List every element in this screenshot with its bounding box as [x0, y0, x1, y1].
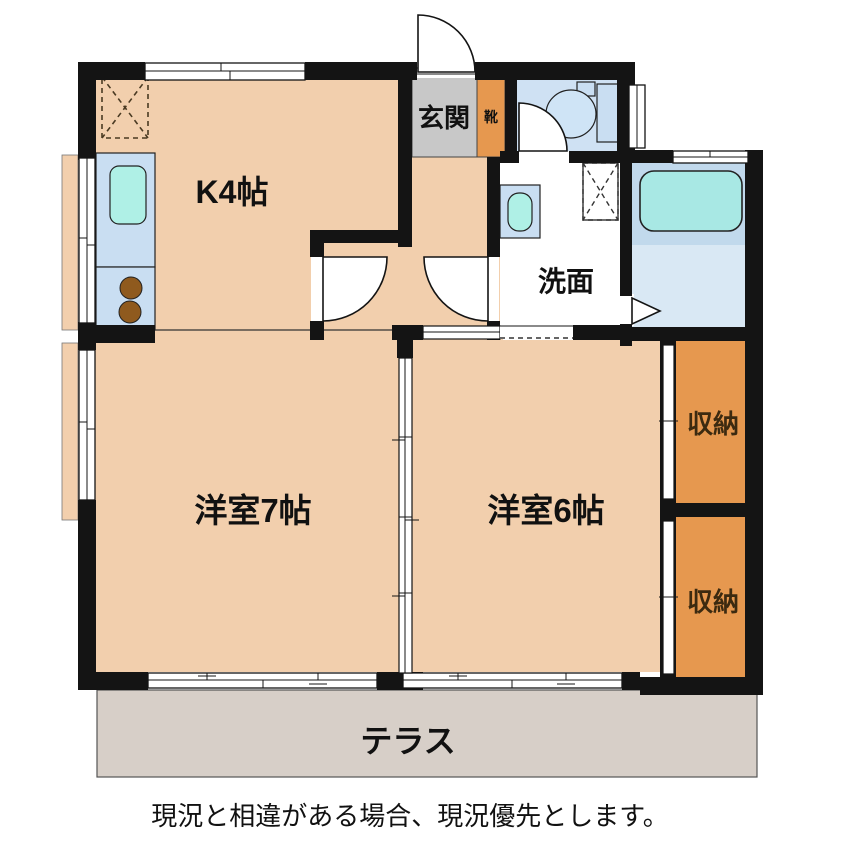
doorway-hall-washroom [488, 257, 499, 321]
wall [487, 157, 500, 257]
wall [392, 325, 423, 340]
wall [310, 321, 324, 340]
entrance-label: 玄関 [418, 103, 470, 133]
kitchen-label: K4帖 [196, 174, 269, 210]
wall [78, 62, 96, 160]
wall [622, 672, 640, 690]
washbasin-icon [500, 185, 540, 238]
left-ledge-upper [62, 155, 78, 330]
threshold-hall-room6 [423, 326, 500, 339]
terrace-label: テラス [360, 723, 455, 759]
floorplan-page: K4帖 玄関 靴 洗面 洋室7帖 洋室6帖 収納 収納 テラス 現況と相違がある… [0, 0, 846, 846]
storage-lower-label: 収納 [687, 587, 739, 617]
wall [78, 672, 148, 690]
shoe-cabinet-label: 靴 [484, 109, 498, 125]
disclaimer-caption: 現況と相違がある場合、現況優先とします。 [151, 801, 668, 831]
wall [398, 62, 412, 247]
window-bottom-room6 [403, 673, 622, 688]
wall [310, 243, 324, 257]
bathtub-icon [640, 171, 742, 231]
wall [397, 340, 413, 358]
doorway-toilet [519, 151, 569, 163]
western-room6-label: 洋室6帖 [487, 492, 604, 529]
wall [505, 62, 517, 159]
doorway-kitchen-hall [311, 257, 323, 321]
wall [78, 325, 155, 343]
stove-burner-icon [120, 277, 142, 299]
stove-burner-icon [119, 301, 141, 323]
kitchen-sink-icon [110, 166, 146, 224]
open-bar-washroom-room6 [500, 326, 573, 339]
floorplan-drawing: K4帖 玄関 靴 洗面 洋室7帖 洋室6帖 収納 収納 テラス 現況と相違がある… [0, 0, 846, 846]
washing-machine-space-icon [583, 163, 618, 220]
western-room7-label: 洋室7帖 [194, 492, 311, 529]
window-top-kitchen [145, 63, 305, 80]
wall [640, 677, 763, 695]
wall [310, 230, 412, 243]
wall [620, 327, 763, 341]
wall [620, 150, 632, 296]
bathroom-floor [632, 245, 750, 330]
wall [635, 150, 673, 163]
window-left-kitchen [79, 158, 95, 323]
window-bottom-room7 [148, 673, 377, 688]
entrance-door-arc [418, 15, 475, 72]
window-bath-north [673, 151, 748, 163]
washroom-label: 洗面 [538, 266, 594, 297]
wall [475, 62, 635, 80]
window-toilet-east [629, 85, 645, 148]
wall [573, 325, 620, 340]
window-left-room7 [79, 350, 95, 500]
storage-upper-label: 収納 [687, 409, 739, 439]
wall [78, 500, 96, 690]
wall [660, 503, 763, 517]
wall [500, 151, 519, 163]
left-ledge-lower [62, 343, 78, 520]
wall [745, 150, 763, 695]
